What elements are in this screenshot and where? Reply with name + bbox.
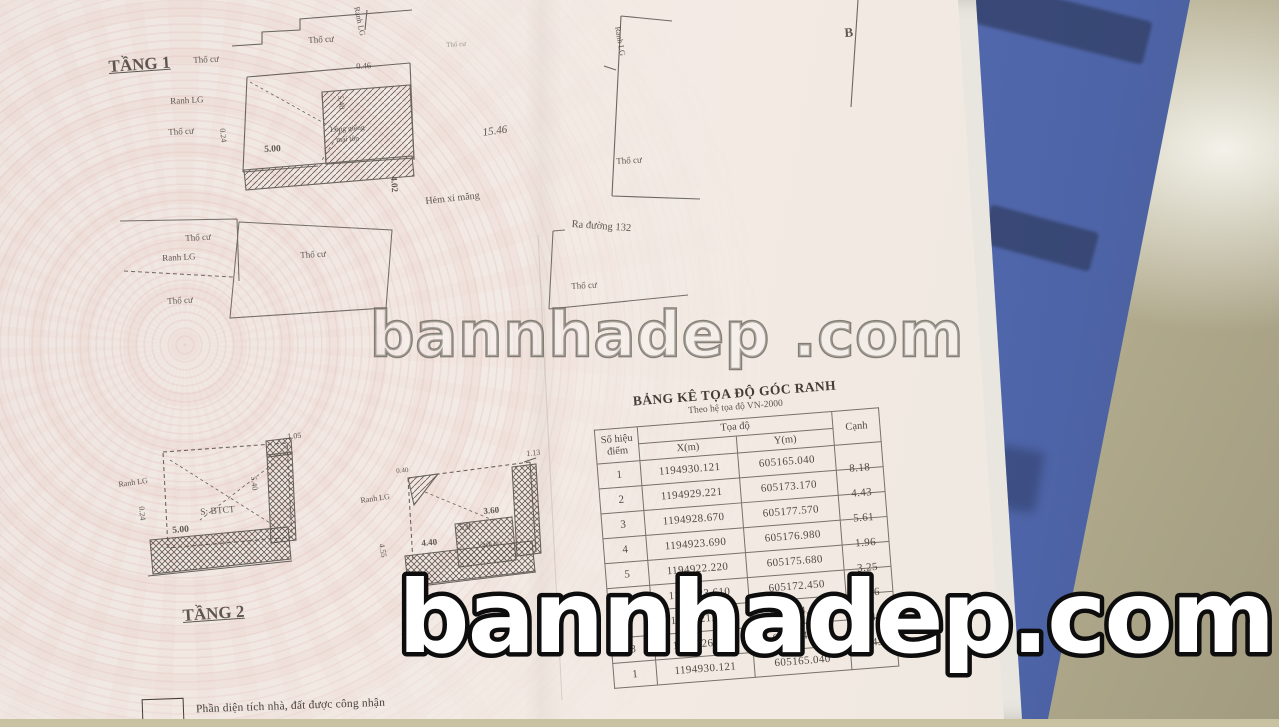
plan-label: Thổ cư: [308, 35, 334, 46]
plan-label: 0.24: [137, 506, 147, 521]
plan-label: Thổ cư: [185, 233, 211, 244]
plan-label: Ranh LG: [170, 95, 204, 106]
plan-label: Thổ cư: [446, 41, 466, 49]
plan-label: Thổ cư: [300, 250, 326, 261]
plan-label: 4.02: [389, 176, 400, 192]
plan-label: 4.40: [421, 538, 438, 549]
plan-label: Hẻm xi măng: [425, 191, 480, 207]
point-cell: 1: [597, 461, 642, 489]
plan-label: Ranh LG: [162, 252, 196, 263]
plan-label: Ranh LG: [352, 6, 366, 37]
canh-cell: 8.18: [834, 442, 883, 471]
plan-label: 1.05: [287, 432, 302, 442]
plan-label: 5.00: [172, 526, 189, 537]
plan-label: 3.60: [483, 506, 500, 517]
plan-label: 1.13: [526, 449, 541, 459]
plan-label: 15.46: [482, 125, 508, 140]
point-cell: 1: [613, 660, 658, 688]
plan-label: 4.55: [377, 543, 388, 558]
plan-label: 5.8: [459, 522, 471, 532]
point-cell: 8: [611, 635, 656, 663]
plan-label: 5.40: [336, 95, 346, 110]
point-cell: 4: [603, 536, 648, 564]
plan-label: 0.40: [396, 467, 409, 475]
plan-label: 5.40: [249, 476, 259, 491]
plan-label: Thổ cư: [571, 281, 597, 292]
plan-label: Thổ cư: [168, 127, 194, 138]
photo-of-cadastral-document: { "document": { "floor1_title": "TẦNG 1"…: [0, 0, 1279, 719]
plan-label: Vách lá: [477, 540, 499, 549]
plan-label: 5.00: [264, 145, 281, 156]
plan-label: Thổ cư: [616, 156, 642, 167]
coordinate-table: Số hiệu điểm Tọa độ Cạnh X(m) Y(m) 11194…: [594, 407, 900, 689]
plan-label: TẦNG 1: [108, 54, 171, 76]
plan-label: Ranh LG: [118, 477, 148, 489]
plan-label: Thổ cư: [167, 296, 193, 307]
col-header-point: Số hiệu điểm: [594, 427, 640, 464]
plan-label: Ra đường 132: [571, 219, 631, 234]
point-cell: 6: [607, 585, 652, 613]
plan-label: Ranh LG: [360, 493, 390, 505]
folder-strap: [969, 0, 1152, 65]
plan-label: Lồng giếng: [330, 124, 365, 134]
plan-label: TẦNG 2: [182, 603, 245, 625]
col-header-side: Cạnh: [832, 408, 881, 446]
plan-label: mái tôn: [336, 134, 359, 143]
legend-swatch: [142, 698, 185, 727]
plan-label: 0.46: [356, 61, 371, 71]
point-cell: 2: [599, 486, 644, 514]
point-cell: 7: [609, 610, 654, 638]
plan-label: B: [844, 25, 854, 39]
point-cell: 5: [605, 561, 650, 589]
folder-strap: [981, 204, 1100, 272]
plan-label: S: BTCT: [200, 506, 235, 519]
plan-label: Ranh LG: [613, 26, 626, 57]
point-cell: 3: [601, 511, 646, 539]
plan-label: 0.24: [218, 128, 228, 143]
coordinate-table-block: BẢNG KÊ TỌA ĐỘ GÓC RANH Theo hệ tọa độ V…: [591, 374, 899, 689]
plan-label: Thổ cư: [193, 55, 219, 66]
